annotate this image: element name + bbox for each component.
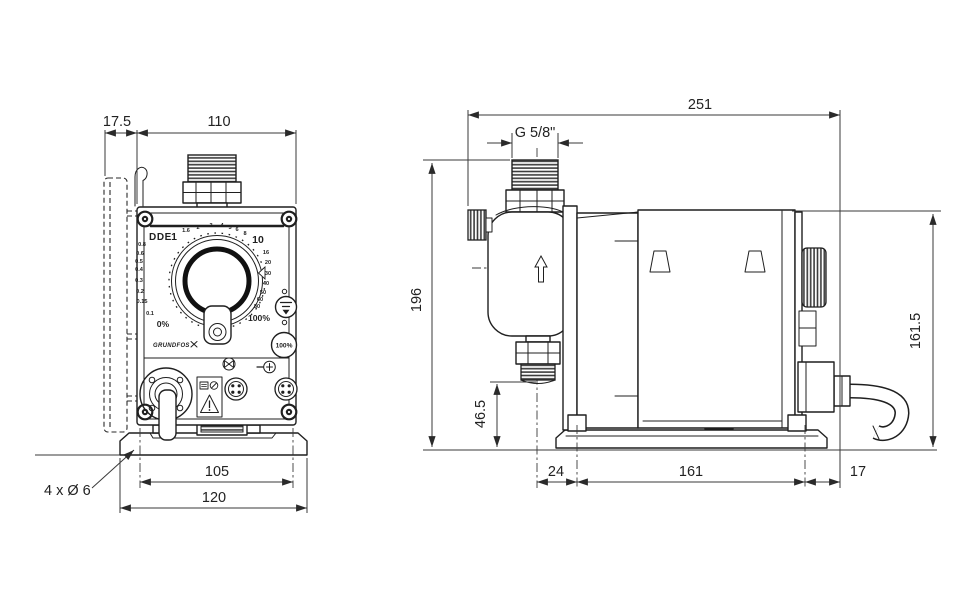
- dial-scale-label: 20: [265, 260, 271, 266]
- thread: [512, 160, 558, 190]
- pump-housing-side: [563, 206, 826, 431]
- panel-screw: [138, 405, 153, 420]
- dial-scale-label: 10: [252, 234, 264, 246]
- thread: [521, 364, 555, 380]
- dial-scale-label: 0.6: [136, 251, 144, 257]
- dim-text: 105: [205, 464, 229, 480]
- head-flange: [563, 206, 577, 430]
- dim-text: 251: [688, 97, 712, 113]
- dim-text: 17: [850, 464, 866, 480]
- note-text: 4 x Ø 6: [44, 483, 91, 499]
- rear-foot: [788, 415, 806, 431]
- dim-text: 17.5: [103, 114, 131, 130]
- dim-connection-thread: G 5/8": [487, 125, 583, 158]
- dial-scale-label: 0.2: [136, 289, 144, 295]
- dial-scale-label: 6: [235, 227, 238, 233]
- side-view: [423, 148, 937, 488]
- dial-scale-label: 0%: [157, 319, 170, 329]
- fitting-neck: [526, 336, 550, 342]
- led-indicator: [282, 320, 286, 324]
- dial-scale-label: 0.8: [138, 242, 146, 248]
- outlet-fitting-side: [516, 336, 560, 384]
- dial-scale-label: 0.4: [135, 267, 144, 273]
- panel-screw: [282, 405, 297, 420]
- thread: [188, 155, 236, 182]
- warning-label: [197, 377, 222, 417]
- motor-housing: [638, 210, 795, 428]
- dial-ring: [185, 249, 249, 313]
- dial-scale-label: 5: [228, 225, 231, 231]
- dial-scale-label: 40: [263, 281, 269, 287]
- signal-connector: [225, 378, 247, 400]
- dial-scale-label: 2: [196, 225, 199, 231]
- cover-lug: [650, 251, 670, 272]
- vent-valve-stem: [486, 218, 492, 232]
- cover-lug: [745, 251, 765, 272]
- dial-scale-label: 8: [243, 231, 246, 237]
- dial-scale-label: 100%: [248, 313, 270, 323]
- hundred-percent-label: 100%: [276, 343, 293, 350]
- dim-text: 161: [679, 464, 703, 480]
- cable-gland: [798, 362, 834, 412]
- head-body: [488, 212, 572, 336]
- panel-screw: [282, 212, 297, 227]
- dim-text: 24: [548, 464, 564, 480]
- pump-dimensional-drawing: 0% 0.1 0.15 0.2 0.3 0.4 0.5 0.6 0.8 1 1.…: [0, 0, 976, 600]
- dial-scale-label: 16: [263, 250, 269, 256]
- signal-connector-2: [275, 378, 297, 400]
- brand-label: GRUNDFOS: [153, 343, 190, 349]
- dosing-head: [468, 207, 572, 336]
- dial-scale-label: 60: [257, 297, 263, 303]
- dial-scale-label: 0.5: [135, 259, 143, 265]
- dim-text: 196: [409, 288, 425, 312]
- base-plate-front: [120, 422, 307, 455]
- led-indicator: [282, 289, 286, 293]
- dial-scale-label: 0.15: [137, 299, 148, 305]
- inlet-fitting-side: [506, 160, 564, 212]
- technical-drawing-page: 0% 0.1 0.15 0.2 0.3 0.4 0.5 0.6 0.8 1 1.…: [0, 0, 976, 600]
- model-label: DDE: [149, 232, 172, 243]
- dim-connection-height: 46.5: [473, 382, 536, 447]
- priming-button: [276, 297, 297, 318]
- relief-valve-icon: [223, 358, 235, 370]
- dim-text: 161.5: [908, 313, 924, 349]
- panel-screw: [138, 212, 153, 227]
- mount-tab: [246, 425, 260, 433]
- dial-scale-label: 0.1: [146, 311, 154, 317]
- dim-text: 46.5: [473, 400, 489, 428]
- dim-text: 120: [202, 490, 226, 506]
- inlet-fitting-front: [183, 155, 241, 208]
- dim-bracket-depth: 17.5: [103, 114, 137, 204]
- drain-tube: [159, 390, 176, 440]
- front-view: 0% 0.1 0.15 0.2 0.3 0.4 0.5 0.6 0.8 1 1.…: [35, 155, 307, 455]
- dial-scale-label: 1: [171, 231, 177, 243]
- dial-scale-label: 0.3: [135, 278, 143, 284]
- power-cable: [798, 362, 902, 439]
- vent-valve-knob: [468, 210, 486, 240]
- dial-knob: [204, 306, 231, 344]
- dial-knob-side: [802, 248, 826, 307]
- dim-text: G 5/8": [515, 125, 556, 141]
- dial-scale-label: 1.6: [182, 228, 190, 234]
- hundred-percent-button: 100%: [272, 333, 297, 358]
- dim-text: 110: [207, 114, 230, 130]
- dial-scale-label: 30: [265, 271, 271, 277]
- dial-scale-label: 80: [254, 304, 260, 310]
- dial-scale-label: 3: [209, 223, 212, 229]
- dial-scale-label: 50: [260, 290, 266, 296]
